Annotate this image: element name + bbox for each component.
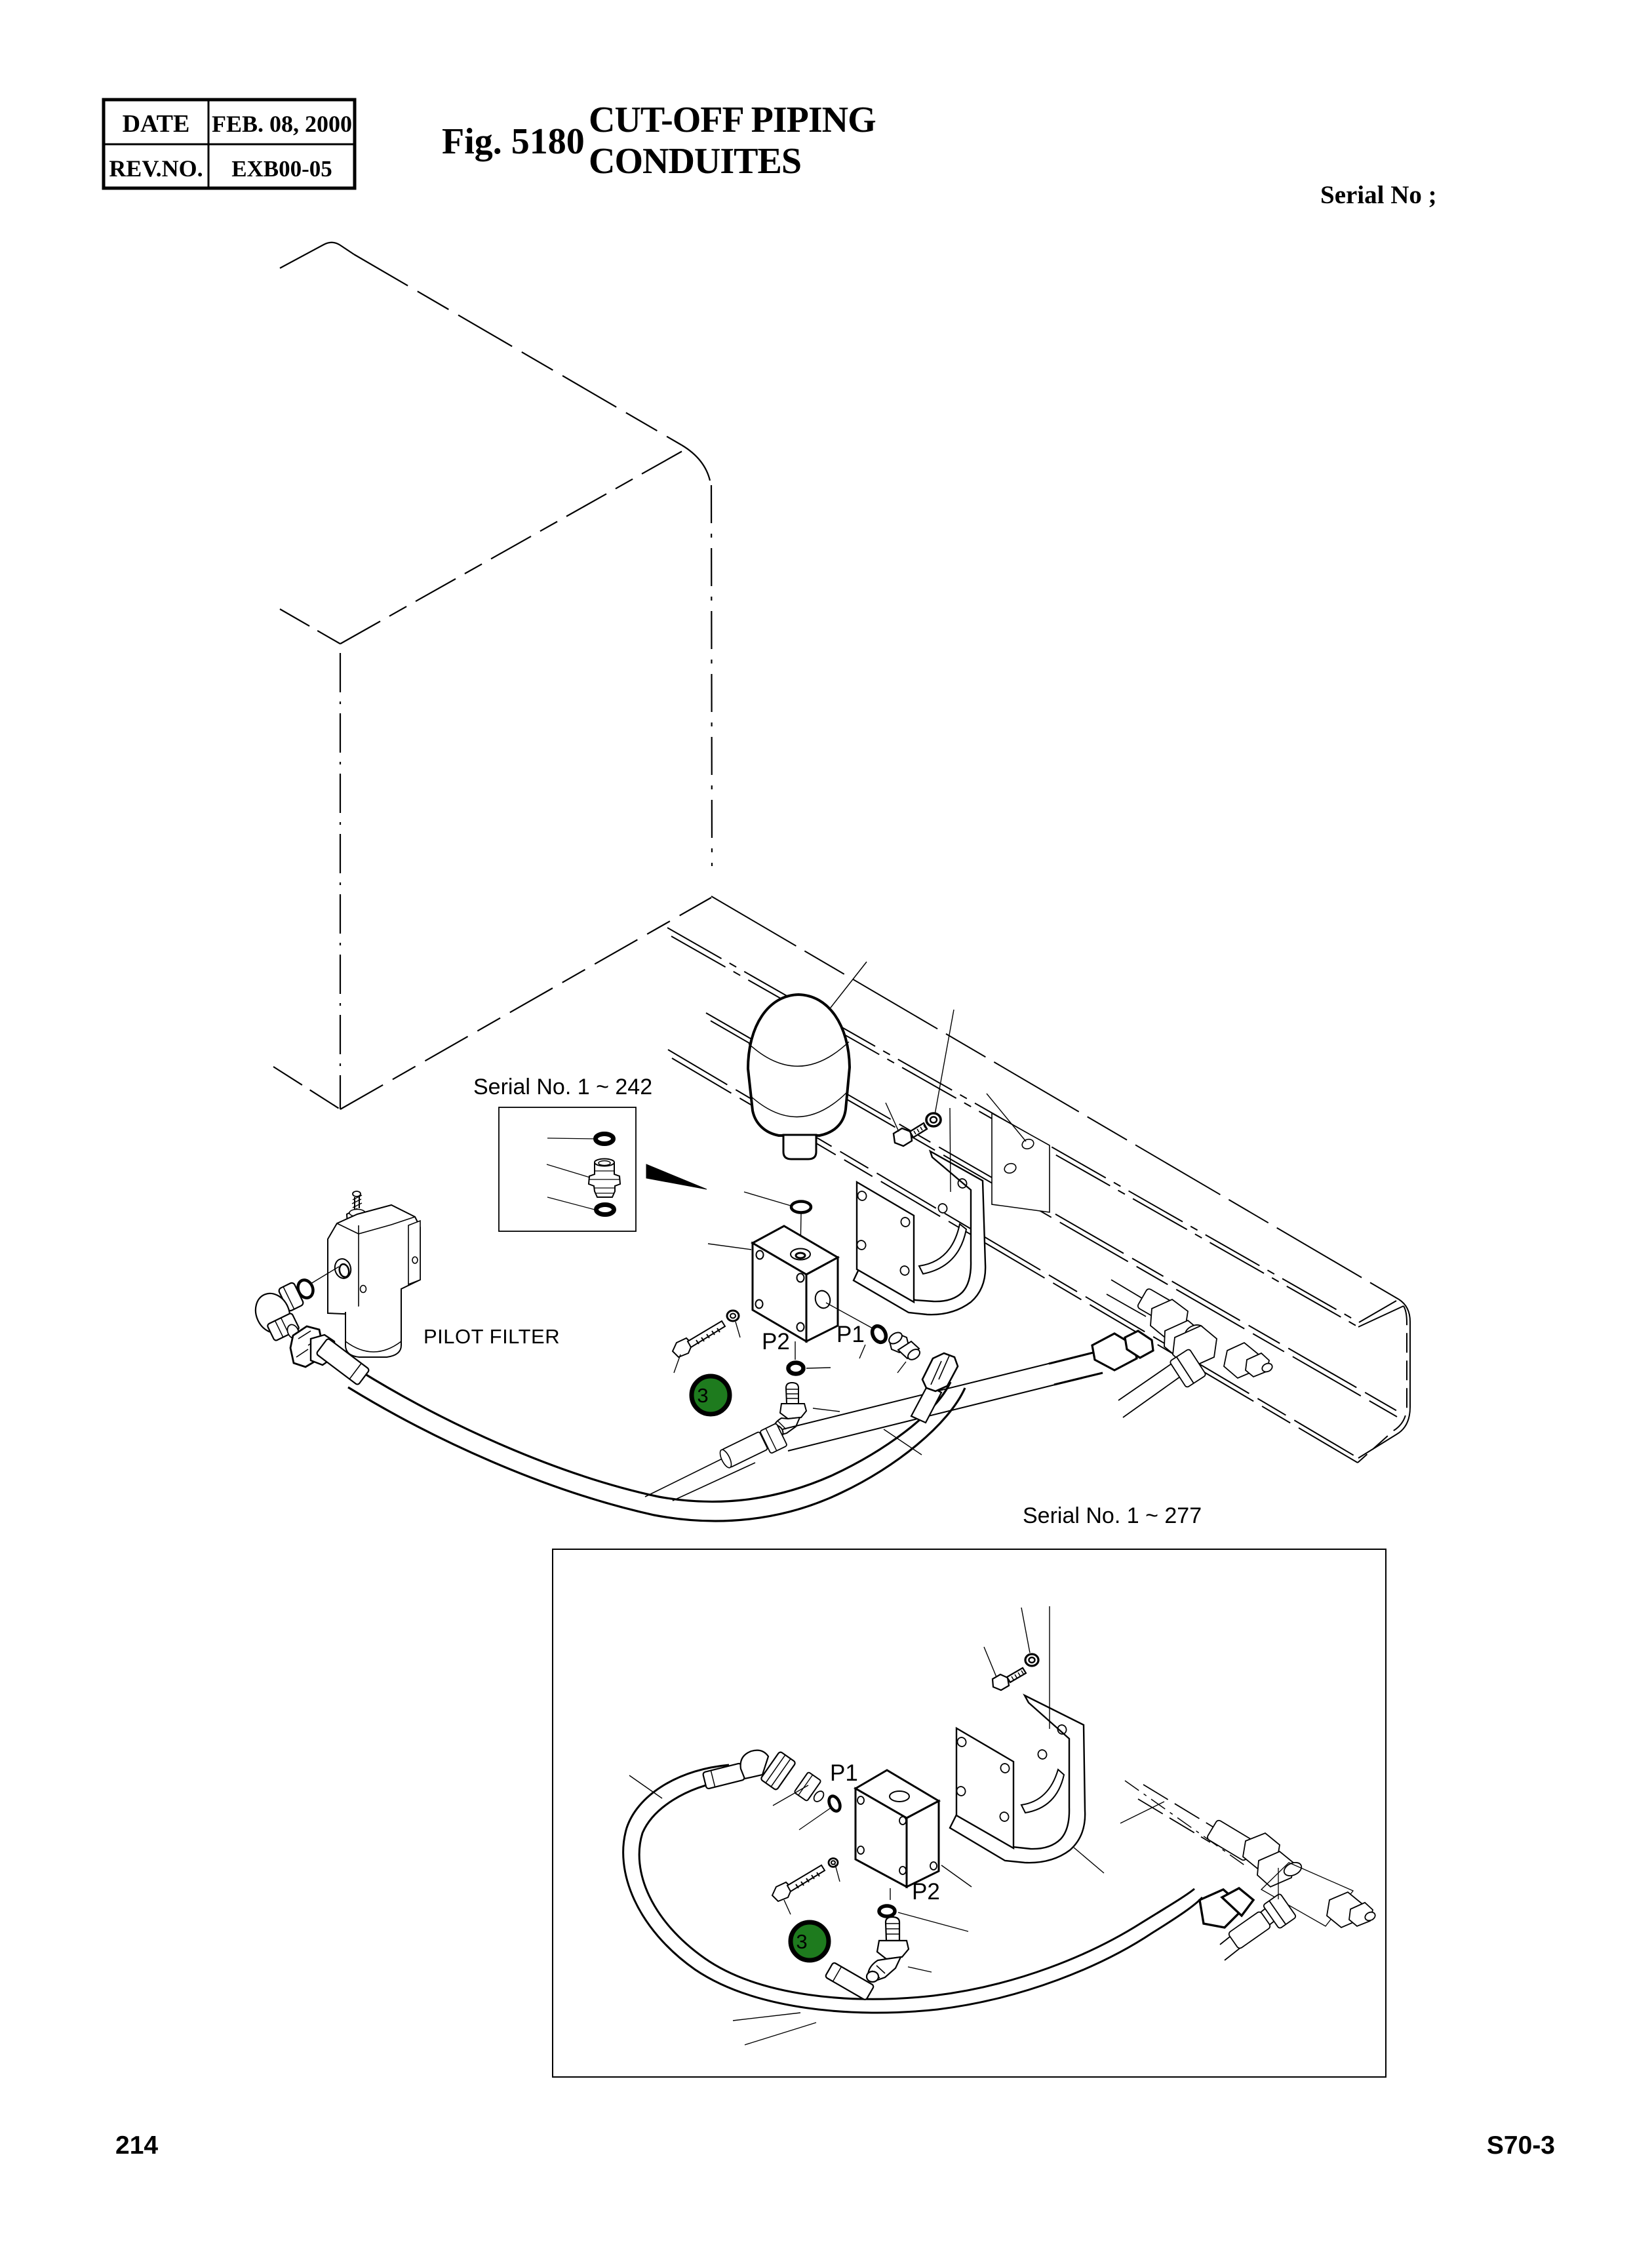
svg-text:P1: P1 [836,1322,865,1347]
svg-text:3: 3 [697,1384,708,1407]
svg-text:PILOT FILTER: PILOT FILTER [423,1325,560,1348]
svg-text:3: 3 [796,1930,807,1953]
svg-text:P1: P1 [830,1760,858,1786]
svg-text:Serial No. 1 ~ 242: Serial No. 1 ~ 242 [473,1075,652,1099]
svg-text:P2: P2 [762,1329,790,1354]
svg-text:Fig. 5180: Fig. 5180 [442,121,585,162]
svg-text:DATE: DATE [123,110,190,138]
svg-text:Serial No ;: Serial No ; [1320,181,1437,209]
svg-text:EXB00-05: EXB00-05 [231,156,332,182]
svg-text:REV.NO.: REV.NO. [109,155,203,182]
svg-text:CONDUITES: CONDUITES [589,141,801,182]
svg-text:FEB. 08, 2000: FEB. 08, 2000 [212,111,352,137]
svg-text:S70-3: S70-3 [1487,2131,1555,2160]
svg-text:Serial No. 1 ~ 277: Serial No. 1 ~ 277 [1023,1503,1202,1528]
svg-text:214: 214 [115,2131,158,2160]
svg-text:P2: P2 [912,1879,940,1905]
svg-text:CUT-OFF PIPING: CUT-OFF PIPING [589,100,876,140]
